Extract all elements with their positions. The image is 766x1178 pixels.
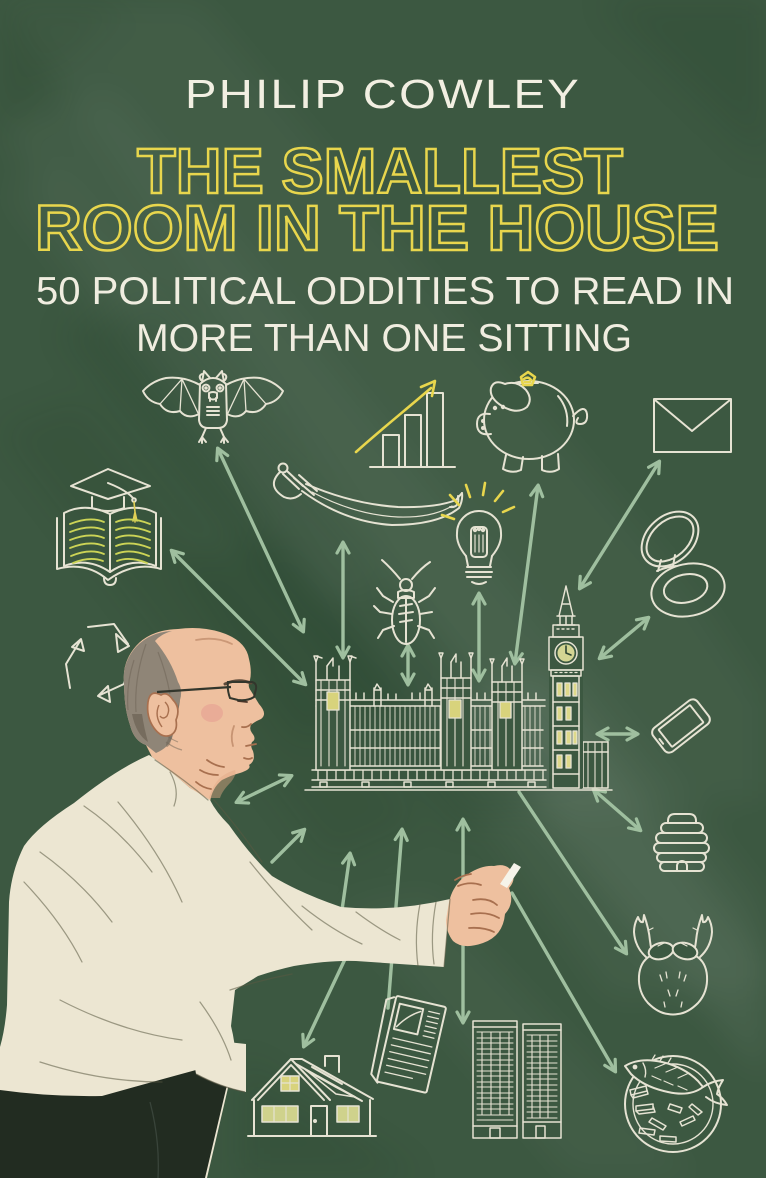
svg-text:50 POLITICAL ODDITIES TO READ: 50 POLITICAL ODDITIES TO READ IN	[36, 270, 734, 313]
svg-text:MORE THAN ONE SITTING: MORE THAN ONE SITTING	[136, 317, 632, 360]
svg-text:ROOM IN THE HOUSE: ROOM IN THE HOUSE	[35, 192, 719, 264]
svg-text:PHILIP COWLEY: PHILIP COWLEY	[185, 71, 581, 117]
